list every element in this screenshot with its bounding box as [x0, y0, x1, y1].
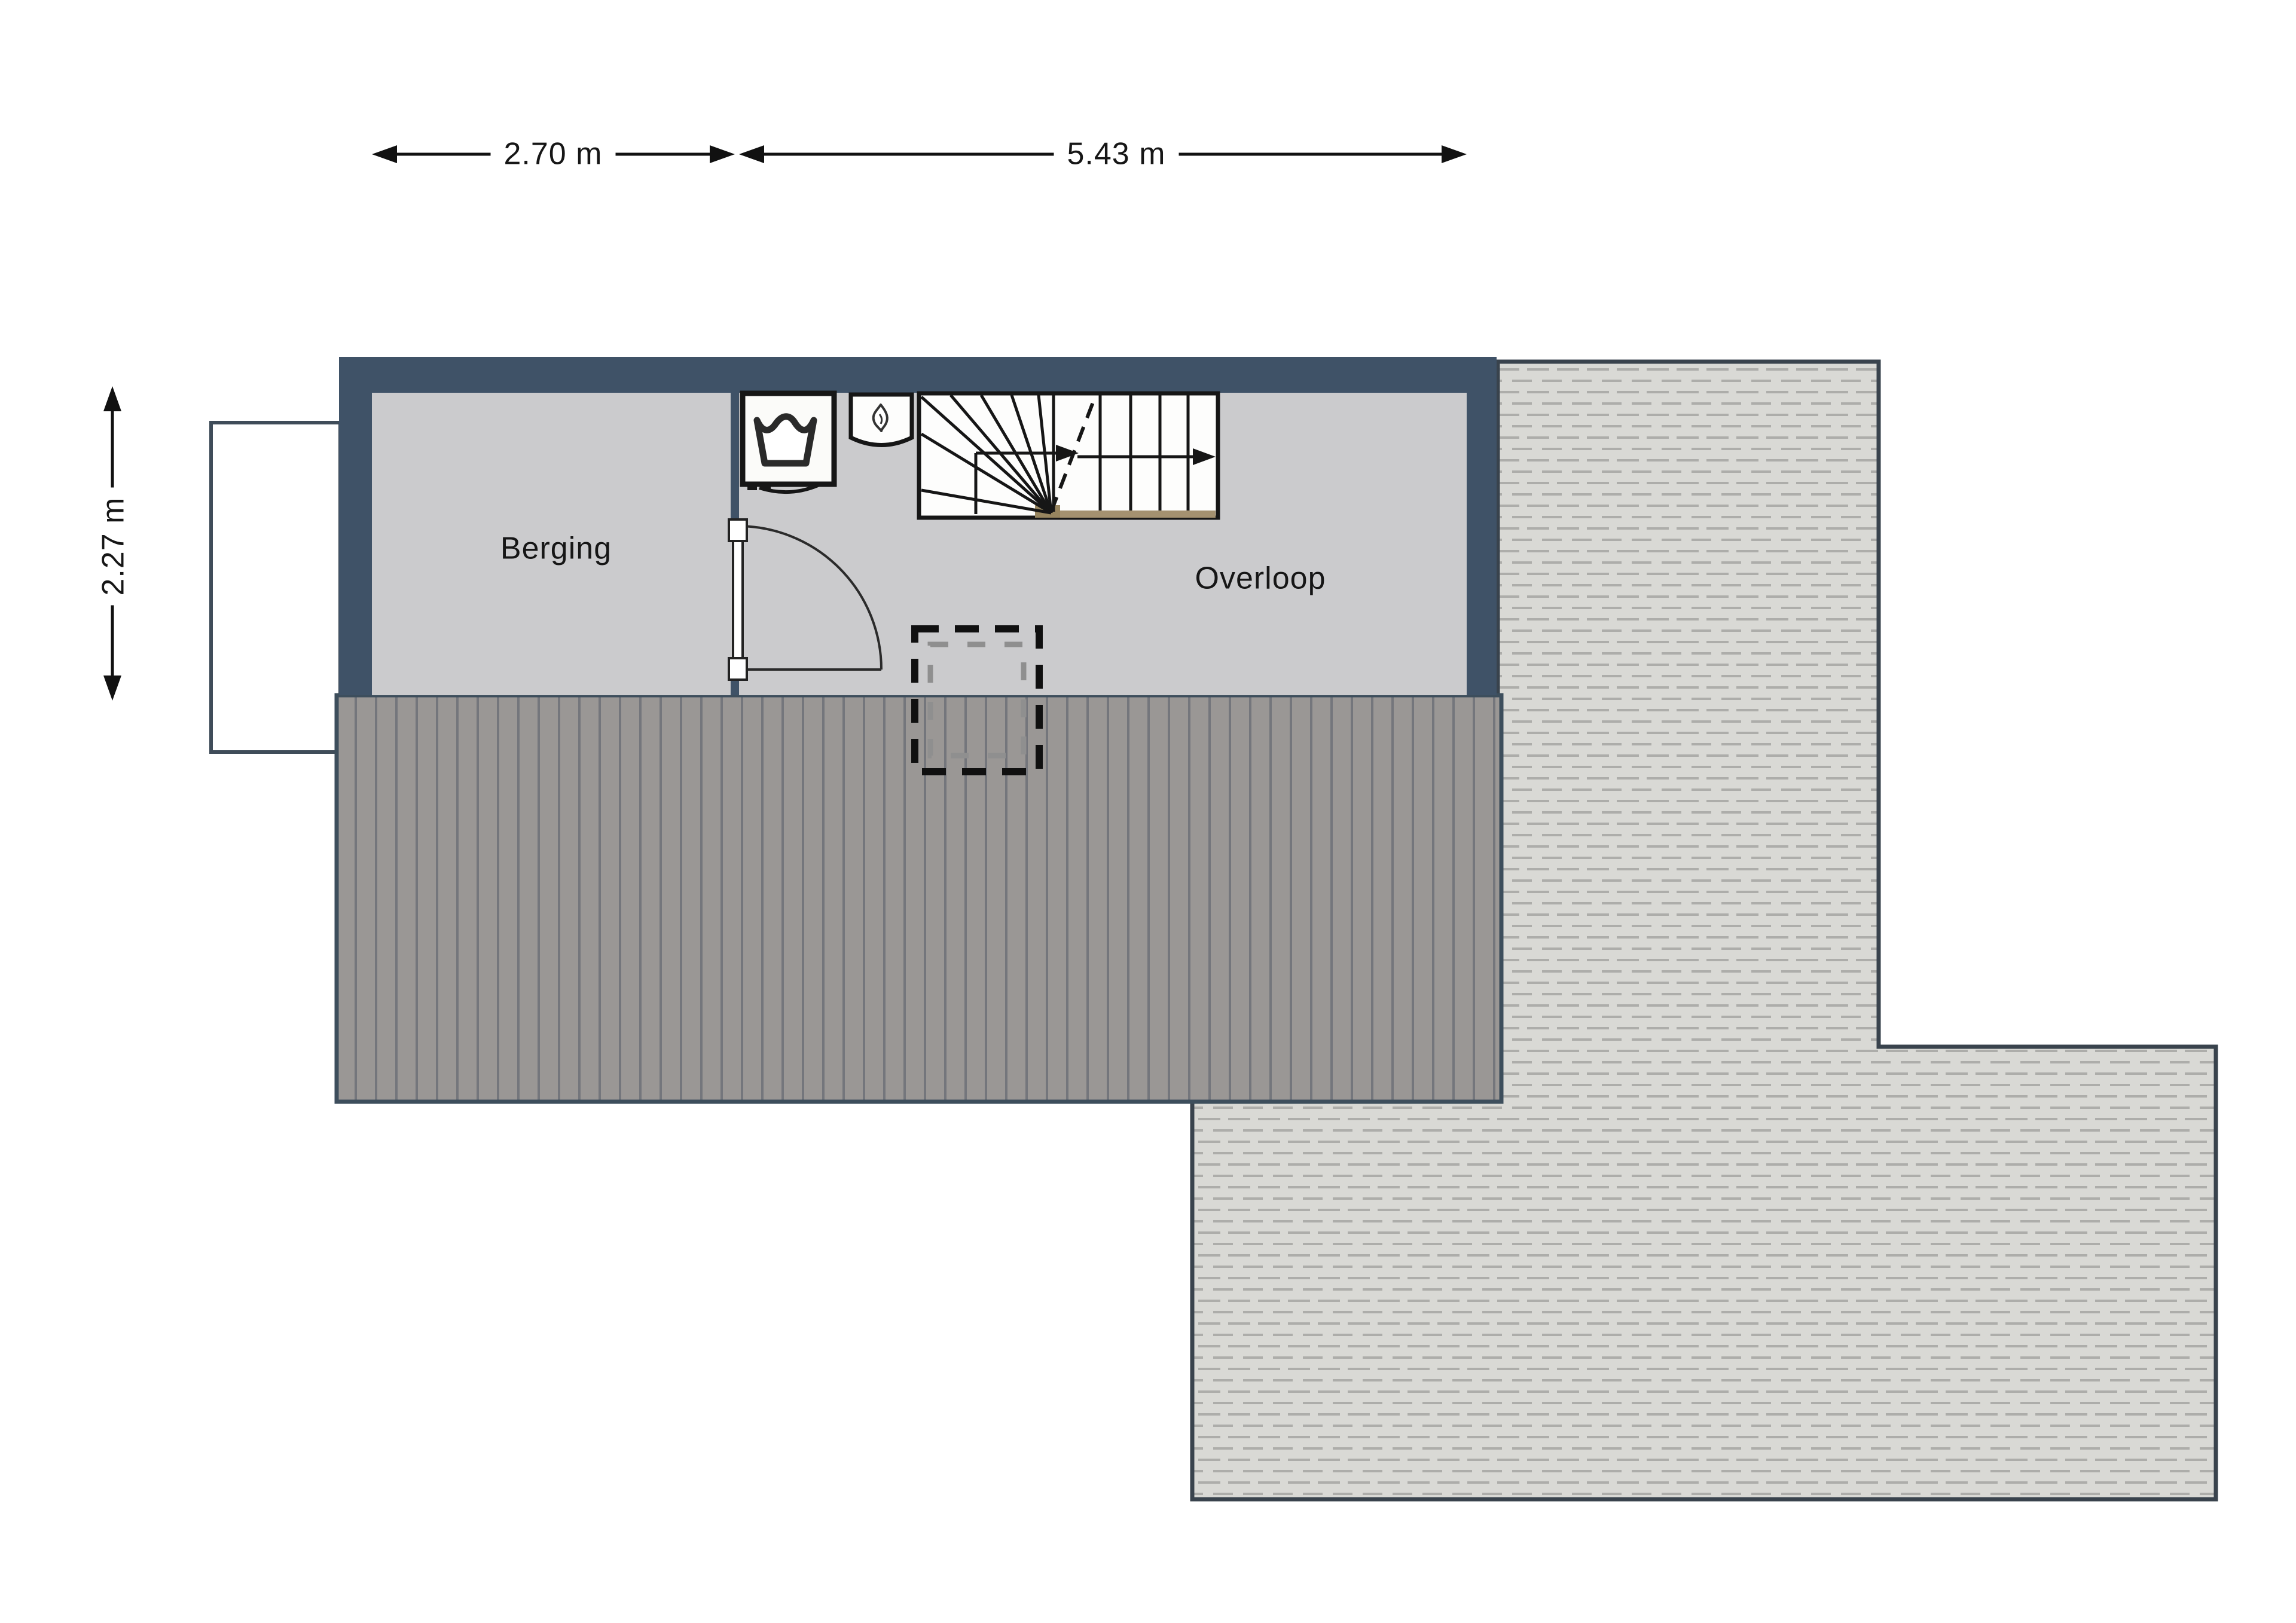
floor-plan-drawing	[0, 0, 2296, 1623]
dimension-label-top-right: 5.43 m	[1054, 136, 1179, 172]
room-label-berging: Berging	[500, 531, 612, 566]
dormer-outline	[211, 423, 340, 752]
washing-machine-icon	[743, 393, 834, 492]
dimension-label-top-left: 2.70 m	[491, 136, 616, 172]
water-heater-icon	[851, 395, 912, 445]
roof-area-dark	[337, 695, 1501, 1102]
staircase-icon	[919, 393, 1218, 518]
dimension-label-left: 2.27 m	[95, 488, 132, 606]
room-label-overloop: Overloop	[1195, 561, 1326, 595]
floor-plan-canvas: 2.70 m 5.43 m 2.27 m Berging Overloop	[0, 0, 2296, 1623]
